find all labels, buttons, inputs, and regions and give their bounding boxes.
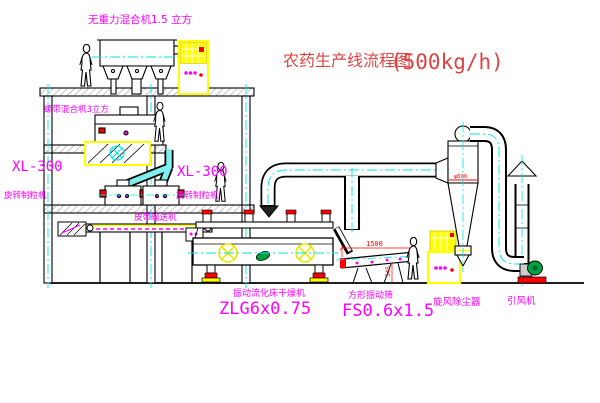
label-sieve-name: 方形振动筛 xyxy=(348,289,393,301)
label-granulator-left-model: XL-300 xyxy=(12,159,63,175)
page-title-capacity: (500kg/h) xyxy=(390,50,504,74)
cabinet-indicator-red xyxy=(199,47,204,52)
process-flow-drawing: 无重力混合机1.5 立方 农药生产线流程图 (500kg/h) 螺带混合机3立方… xyxy=(0,0,600,403)
dim-cyclone-diameter: φ600 xyxy=(454,174,467,180)
fluid-bed-dryer xyxy=(186,210,338,282)
dryer-feed-funnel xyxy=(260,206,278,217)
label-top-mixer: 无重力混合机1.5 立方 xyxy=(88,13,192,26)
gravity-free-mixer xyxy=(97,40,183,94)
control-cabinet-top xyxy=(179,41,208,94)
label-granulator-mid-model: XL-300 xyxy=(177,164,228,180)
label-cyclone: 旋风除尘器 xyxy=(433,296,481,308)
dim-sieve-height: 545 xyxy=(385,266,392,277)
cyclone-inlet-flare xyxy=(436,158,448,183)
worker-figure-roof xyxy=(80,44,92,86)
label-granulator-mid-name: 旋转制粒机 xyxy=(176,190,219,201)
rotary-granulators xyxy=(100,180,184,205)
label-sieve-model: FS0.6x1.5 xyxy=(342,301,434,321)
dryer-feet xyxy=(202,265,328,282)
label-ribbon-mixer: 螺带混合机3立方 xyxy=(44,104,109,115)
induced-draft-fan xyxy=(518,261,546,283)
roof-slab xyxy=(40,88,254,96)
label-belt-conveyor: 皮带输送机 xyxy=(134,212,177,223)
drawing-canvas: 无重力混合机1.5 立方 农药生产线流程图 (500kg/h) 螺带混合机3立方… xyxy=(0,0,600,403)
worker-figure-ground xyxy=(407,237,419,279)
label-fan: 引风机 xyxy=(507,295,536,307)
dim-sieve-length: 1500 xyxy=(366,240,383,248)
floor-slab xyxy=(44,205,254,213)
label-granulator-left-name: 旋转制粒机 xyxy=(4,190,47,201)
label-dryer-model: ZLG6x0.75 xyxy=(219,299,311,319)
conveyor-legs xyxy=(100,232,192,283)
label-dryer-name: 振动流化床干燥机 xyxy=(233,287,305,299)
control-cabinet-bottom xyxy=(428,231,460,283)
weighing-platform xyxy=(85,142,150,165)
